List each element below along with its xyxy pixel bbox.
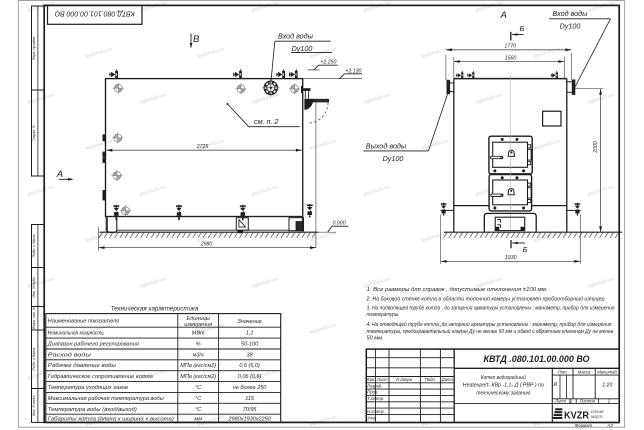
- svg-text:50 мм.: 50 мм.: [367, 336, 384, 342]
- svg-text:не более 250: не более 250: [233, 385, 268, 391]
- svg-text:2. На боковой стенке котла в: 2. На боковой стенке котла в области топ…: [366, 296, 605, 303]
- svg-text:Вход воды: Вход воды: [278, 31, 314, 40]
- svg-text:Разраб.: Разраб.: [367, 383, 382, 388]
- svg-text:N докум.: N докум.: [396, 377, 413, 382]
- svg-text:1: 1: [570, 399, 572, 404]
- svg-text:Масштаб: Масштаб: [597, 370, 617, 375]
- svg-text:МПа (кгс/см2): МПа (кгс/см2): [180, 374, 216, 380]
- svg-text:+2.250: +2.250: [320, 60, 336, 66]
- svg-text:Подп.: Подп.: [425, 377, 436, 382]
- svg-text:Изм.: Изм.: [366, 377, 375, 382]
- svg-text:2980: 2980: [200, 241, 213, 247]
- svg-text:°С: °С: [195, 407, 201, 413]
- svg-text:техническому заданию: техническому заданию: [476, 391, 531, 397]
- svg-text:Значение: Значение: [237, 319, 262, 325]
- svg-text:Единицы: Единицы: [186, 316, 209, 322]
- svg-text:°С: °С: [195, 385, 201, 391]
- svg-text:°С: °С: [195, 396, 201, 402]
- svg-text:Техническая характеристика: Техническая характеристика: [111, 305, 199, 312]
- svg-text:Дата: Дата: [441, 377, 454, 382]
- svg-text:измерения: измерения: [184, 322, 212, 328]
- svg-text:Котел водогрейный: Котел водогрейный: [481, 374, 526, 381]
- svg-text:Масса: Масса: [578, 370, 591, 375]
- svg-text:1. Все размеры для справок ,: 1. Все размеры для справок , допустимые …: [367, 287, 548, 293]
- svg-text:115: 115: [245, 396, 255, 402]
- svg-text:Рабочее давление воды: Рабочее давление воды: [48, 363, 116, 369]
- svg-text:KVZR: KVZR: [564, 409, 589, 421]
- svg-text:см. п. 2: см. п. 2: [254, 117, 278, 126]
- svg-text:Перв. примен.: Перв. примен.: [32, 36, 36, 61]
- svg-text:Формат: Формат: [575, 423, 593, 428]
- svg-text:4. На отводящей трубе котла ,: 4. На отводящей трубе котла ,до запорной…: [367, 321, 612, 328]
- svg-text:%: %: [196, 342, 201, 348]
- svg-text:0,06 (0,6): 0,06 (0,6): [238, 374, 262, 380]
- svg-text:Инв. N дубл.: Инв. N дубл.: [32, 276, 36, 297]
- svg-text:Взам. инв. N: Взам. инв. N: [32, 307, 36, 329]
- svg-text:Б: Б: [520, 24, 525, 33]
- svg-text:МВт: МВт: [192, 331, 205, 337]
- svg-text:2725: 2725: [196, 144, 209, 150]
- svg-text:1:20: 1:20: [602, 383, 612, 389]
- svg-text:1,1: 1,1: [246, 331, 254, 337]
- svg-text:3. На подводящей трубе котла: 3. На подводящей трубе котла , до запорн…: [367, 304, 615, 311]
- svg-text:Диапазон рабочего регулировани: Диапазон рабочего регулирования: [47, 342, 139, 348]
- svg-text:Dy100: Dy100: [292, 44, 313, 53]
- svg-text:Максимальная рабочая температу: Максимальная рабочая температура воды: [48, 396, 164, 402]
- svg-text:Температура уходящих газов: Температура уходящих газов: [48, 385, 128, 391]
- svg-text:КВТД.080.101.00.000 ВО: КВТД.080.101.00.000 ВО: [54, 9, 135, 16]
- svg-text:температуры, предохранительный: температуры, предохранительный клапан Ду…: [367, 328, 614, 335]
- svg-text:Справ. N: Справ. N: [32, 125, 36, 141]
- svg-text:И: И: [553, 382, 557, 388]
- svg-text:+2.130: +2.130: [345, 68, 361, 74]
- svg-text:Dy100: Dy100: [560, 21, 581, 30]
- svg-text:Б: Б: [523, 245, 528, 254]
- svg-text:50-100: 50-100: [241, 342, 259, 348]
- svg-text:КВТД .080.101.00.000 ВО: КВТД .080.101.00.000 ВО: [484, 354, 590, 364]
- svg-text:Лит.: Лит.: [557, 370, 568, 375]
- svg-text:Т.контр.: Т.контр.: [367, 396, 384, 401]
- svg-text:Heatexpert- КВр -1,1- Д ( РВР: Heatexpert- КВр -1,1- Д ( РВР ) по: [463, 383, 544, 389]
- svg-text:2980х1930х2250: 2980х1930х2250: [227, 416, 271, 422]
- svg-text:Температура воды (вход/выход): Температура воды (вход/выход): [48, 407, 137, 413]
- svg-text:70/95: 70/95: [243, 407, 258, 413]
- svg-text:мм: мм: [194, 416, 202, 422]
- svg-text:Подп. и дата: Подп. и дата: [32, 348, 36, 371]
- svg-text:Инв. N подл.: Инв. N подл.: [32, 395, 36, 417]
- svg-text:А: А: [500, 10, 507, 21]
- svg-text:м3/ч: м3/ч: [193, 352, 204, 358]
- svg-text:2000: 2000: [593, 141, 599, 154]
- svg-text:Лист: Лист: [376, 377, 388, 382]
- svg-text:В: В: [193, 34, 200, 45]
- svg-text:Подп. и дата: Подп. и дата: [32, 234, 36, 257]
- svg-text:температуры.: температуры.: [367, 312, 400, 318]
- svg-text:Расход воды: Расход воды: [48, 352, 91, 358]
- svg-text:Н.контр.: Н.контр.: [367, 409, 385, 414]
- svg-text:ЗАВОД РЭП: ЗАВОД РЭП: [591, 415, 603, 419]
- svg-text:0.000: 0.000: [333, 221, 346, 227]
- svg-text:А3: А3: [606, 423, 613, 428]
- svg-text:Пров.: Пров.: [367, 390, 378, 395]
- svg-text:1560: 1560: [505, 55, 517, 61]
- svg-text:Утв.: Утв.: [367, 415, 377, 420]
- svg-text:Лист: Лист: [554, 399, 566, 404]
- svg-text:Выход воды: Выход воды: [366, 141, 407, 150]
- svg-text:Габариты котла (длина х ширина: Габариты котла (длина х ширина х высота): [48, 416, 174, 422]
- svg-text:0,6 (6,0): 0,6 (6,0): [239, 363, 260, 369]
- svg-text:Dy100: Dy100: [383, 154, 404, 163]
- svg-text:Листов: Листов: [579, 399, 596, 404]
- svg-text:Номинальная мощность: Номинальная мощность: [48, 331, 104, 337]
- svg-text:38: 38: [247, 352, 254, 358]
- svg-text:КОТЕЛЬНЫЙ: КОТЕЛЬНЫЙ: [591, 410, 604, 414]
- svg-text:МПа (кгс/см2): МПа (кгс/см2): [180, 363, 216, 369]
- svg-text:Вход воды: Вход воды: [553, 9, 589, 18]
- svg-text:Гидравлическое сопротивление к: Гидравлическое сопротивление котла: [48, 374, 153, 380]
- svg-text:А: А: [56, 169, 63, 180]
- svg-text:1930: 1930: [505, 255, 517, 261]
- svg-text:1770: 1770: [504, 44, 516, 50]
- svg-text:Наименование показателя: Наименование показателя: [48, 319, 119, 325]
